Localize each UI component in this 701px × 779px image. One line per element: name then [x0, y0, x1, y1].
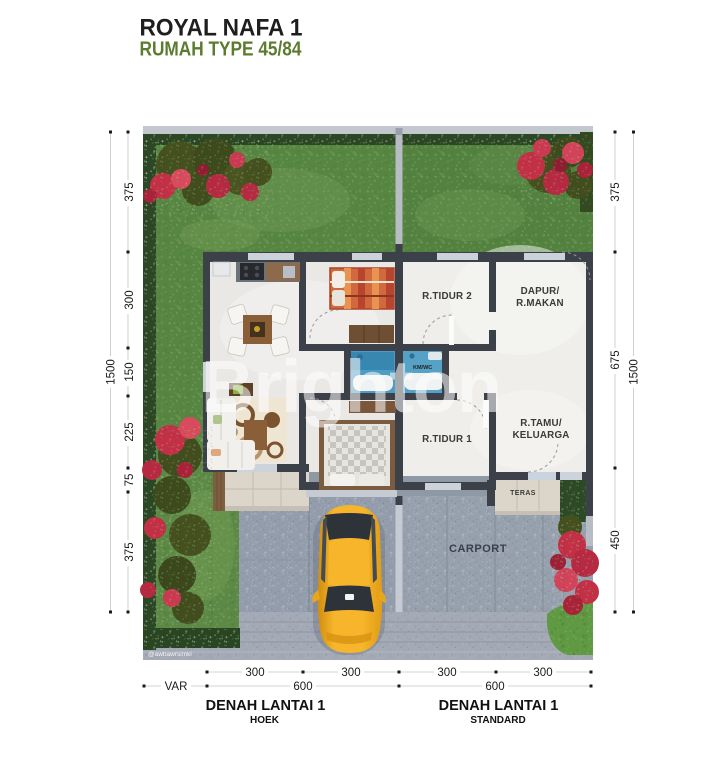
svg-text:600: 600 [293, 681, 312, 693]
svg-text:KELUARGA: KELUARGA [512, 430, 569, 441]
svg-text:R.MAKAN: R.MAKAN [516, 298, 564, 309]
svg-text:300: 300 [245, 667, 264, 679]
svg-text:375: 375 [610, 182, 622, 201]
svg-text:1500: 1500 [106, 359, 118, 385]
svg-text:1500: 1500 [629, 359, 641, 385]
svg-text:450: 450 [610, 530, 622, 549]
svg-text:375: 375 [124, 542, 136, 561]
svg-text:CARPORT: CARPORT [449, 543, 507, 555]
svg-text:675: 675 [610, 350, 622, 369]
svg-text:R.TAMU/: R.TAMU/ [520, 418, 562, 429]
svg-text:R.TIDUR 2: R.TIDUR 2 [422, 291, 472, 302]
svg-text:VAR: VAR [165, 681, 188, 693]
svg-text:600: 600 [485, 681, 504, 693]
svg-text:150: 150 [124, 362, 136, 381]
svg-text:375: 375 [124, 182, 136, 201]
svg-text:HOEK: HOEK [250, 715, 280, 726]
svg-text:ROYAL NAFA 1: ROYAL NAFA 1 [140, 15, 303, 42]
svg-text:225: 225 [124, 422, 136, 441]
svg-text:R.TIDUR 1: R.TIDUR 1 [422, 434, 472, 445]
svg-text:300: 300 [533, 667, 552, 679]
svg-text:300: 300 [341, 667, 360, 679]
svg-text:75: 75 [124, 474, 136, 487]
svg-text:300: 300 [437, 667, 456, 679]
svg-text:TERAS: TERAS [510, 490, 536, 497]
svg-text:Brighton: Brighton [201, 345, 501, 428]
svg-text:RUMAH TYPE 45/84: RUMAH TYPE 45/84 [140, 39, 303, 61]
svg-text:STANDARD: STANDARD [470, 715, 525, 726]
svg-text:DENAH LANTAI 1: DENAH LANTAI 1 [206, 698, 326, 714]
svg-text:DENAH LANTAI 1: DENAH LANTAI 1 [439, 698, 559, 714]
svg-text:@awbawrsimki: @awbawrsimki [148, 651, 192, 658]
svg-text:DAPUR/: DAPUR/ [521, 286, 560, 297]
svg-text:300: 300 [124, 290, 136, 309]
